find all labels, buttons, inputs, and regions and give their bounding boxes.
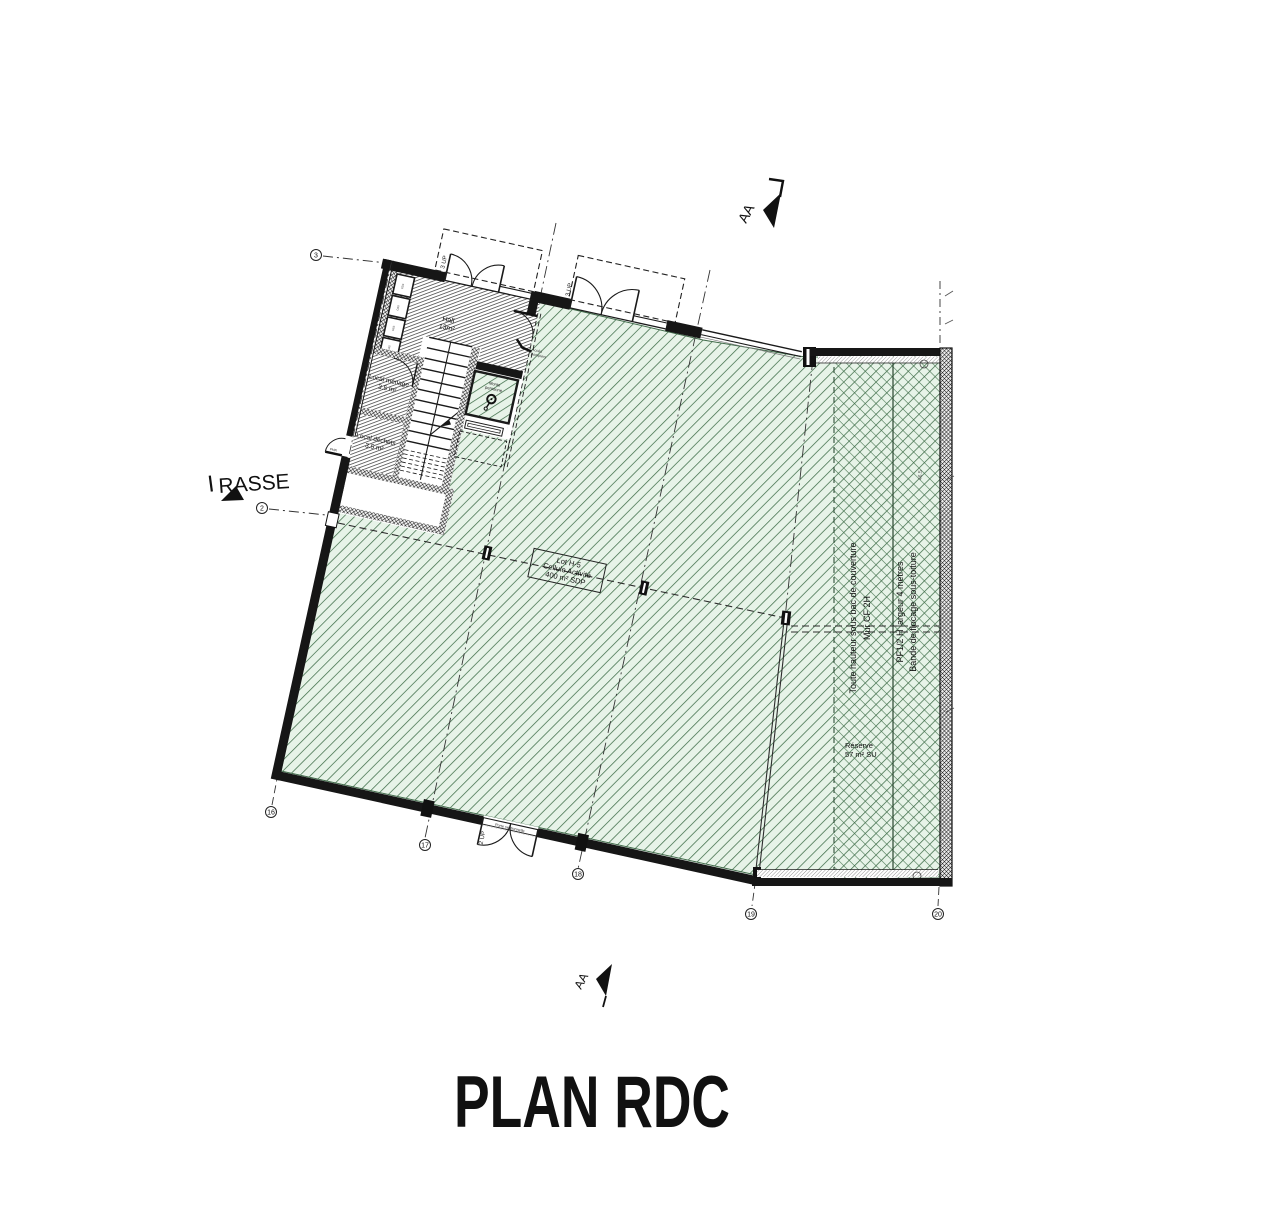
svg-text:20: 20 — [934, 912, 942, 919]
svg-text:57 m² SU: 57 m² SU — [845, 750, 877, 759]
svg-text:Toute hauteur sous bac de couv: Toute hauteur sous bac de couverture — [848, 542, 858, 693]
svg-text:Mur CF 2H: Mur CF 2H — [862, 596, 872, 640]
svg-text:18: 18 — [574, 872, 582, 879]
svg-text:16: 16 — [267, 810, 275, 817]
svg-text:3: 3 — [314, 253, 318, 260]
svg-text:Bande de flocage sous-toiture: Bande de flocage sous-toiture — [908, 552, 918, 672]
svg-text:46.5: 46.5 — [918, 470, 924, 480]
svg-text:2: 2 — [260, 506, 264, 513]
svg-text:19: 19 — [747, 912, 755, 919]
svg-text:PLAN RDC: PLAN RDC — [454, 1062, 730, 1143]
svg-text:PF1/2 H largeur 4 mètres: PF1/2 H largeur 4 mètres — [895, 561, 905, 663]
svg-text:Réserve: Réserve — [845, 741, 873, 750]
svg-text:17: 17 — [421, 843, 429, 850]
